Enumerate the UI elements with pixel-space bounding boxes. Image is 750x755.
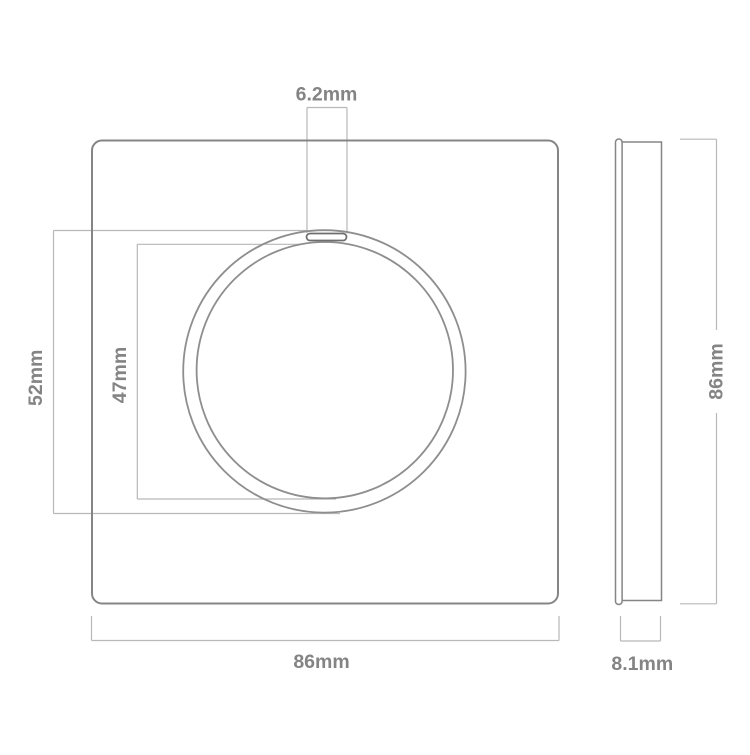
svg-text:52mm: 52mm [25,350,47,406]
svg-text:86mm: 86mm [293,651,349,673]
svg-text:6.2mm: 6.2mm [296,84,358,106]
svg-text:47mm: 47mm [109,347,131,403]
svg-text:86mm: 86mm [706,343,728,399]
svg-text:8.1mm: 8.1mm [611,653,673,675]
